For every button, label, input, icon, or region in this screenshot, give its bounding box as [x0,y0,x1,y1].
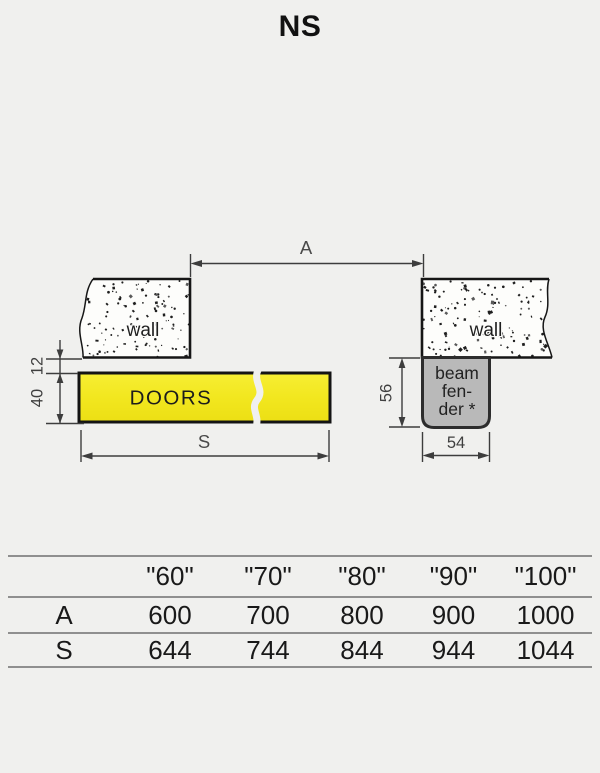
doors-label: DOORS [130,387,213,410]
dim-56-label: 56 [377,384,395,402]
right-wall-label: wall [469,320,503,341]
table-cell: 900 [408,600,499,631]
table-row-label: S [8,635,120,666]
dim-a-label: A [300,237,313,258]
table-header-row: "60" "70" "80" "90" "100" [8,555,592,596]
dim-56-top-arrowhead [399,358,406,368]
left-wall: wall [80,279,191,358]
dim-s-right-arrowhead [318,453,330,460]
table-row-label: A [8,600,120,631]
dim-12-label: 12 [28,357,46,375]
beam-fender-label-line1: beam [435,363,479,383]
table-header-cell: "70" [220,561,316,592]
left-wall-body [80,279,190,358]
right-wall-body [422,279,552,358]
left-wall-label: wall [126,320,160,341]
table-row: A 600 700 800 900 1000 [8,596,592,632]
right-wall: wall [422,279,552,359]
page: NS wall [0,0,600,773]
table-cell: 944 [408,635,499,666]
dim-54-left-arrowhead [423,452,435,459]
beam-fender-label-line2: fen- [442,381,472,401]
dim-54-right-arrowhead [478,452,490,459]
table-cell: 744 [220,635,316,666]
doors-bar: DOORS [79,369,330,428]
table-cell: 844 [316,635,408,666]
dim-40-bottom-arrowhead [57,414,64,424]
dim-12-arrowhead [57,350,64,360]
table-header-cell: "80" [316,561,408,592]
dim-56-bottom-arrowhead [399,417,406,427]
dim-40-label: 40 [28,389,46,407]
table-cell: 1000 [499,600,592,631]
table-cell: 644 [120,635,220,666]
table-cell: 700 [220,600,316,631]
size-table: "60" "70" "80" "90" "100" A 600 700 800 … [8,555,592,668]
doors-bar-break [254,369,260,428]
table-header-cell: "60" [120,561,220,592]
table-cell: 600 [120,600,220,631]
beam-fender: beam fen- der * [423,358,490,428]
beam-fender-label-line3: der * [439,399,476,419]
table-header-cell: "100" [499,561,592,592]
table-cell: 1044 [499,635,592,666]
dim-40-top-arrowhead [57,374,64,384]
table-row: S 644 744 844 944 1044 [8,632,592,668]
table-cell: 800 [316,600,408,631]
dim-a-left-arrowhead [191,260,203,267]
dim-54-label: 54 [447,434,465,452]
dim-a-right-arrowhead [412,260,424,267]
dim-s-label: S [198,431,210,452]
dim-s-left-arrowhead [81,453,93,460]
table-header-cell: "90" [408,561,499,592]
